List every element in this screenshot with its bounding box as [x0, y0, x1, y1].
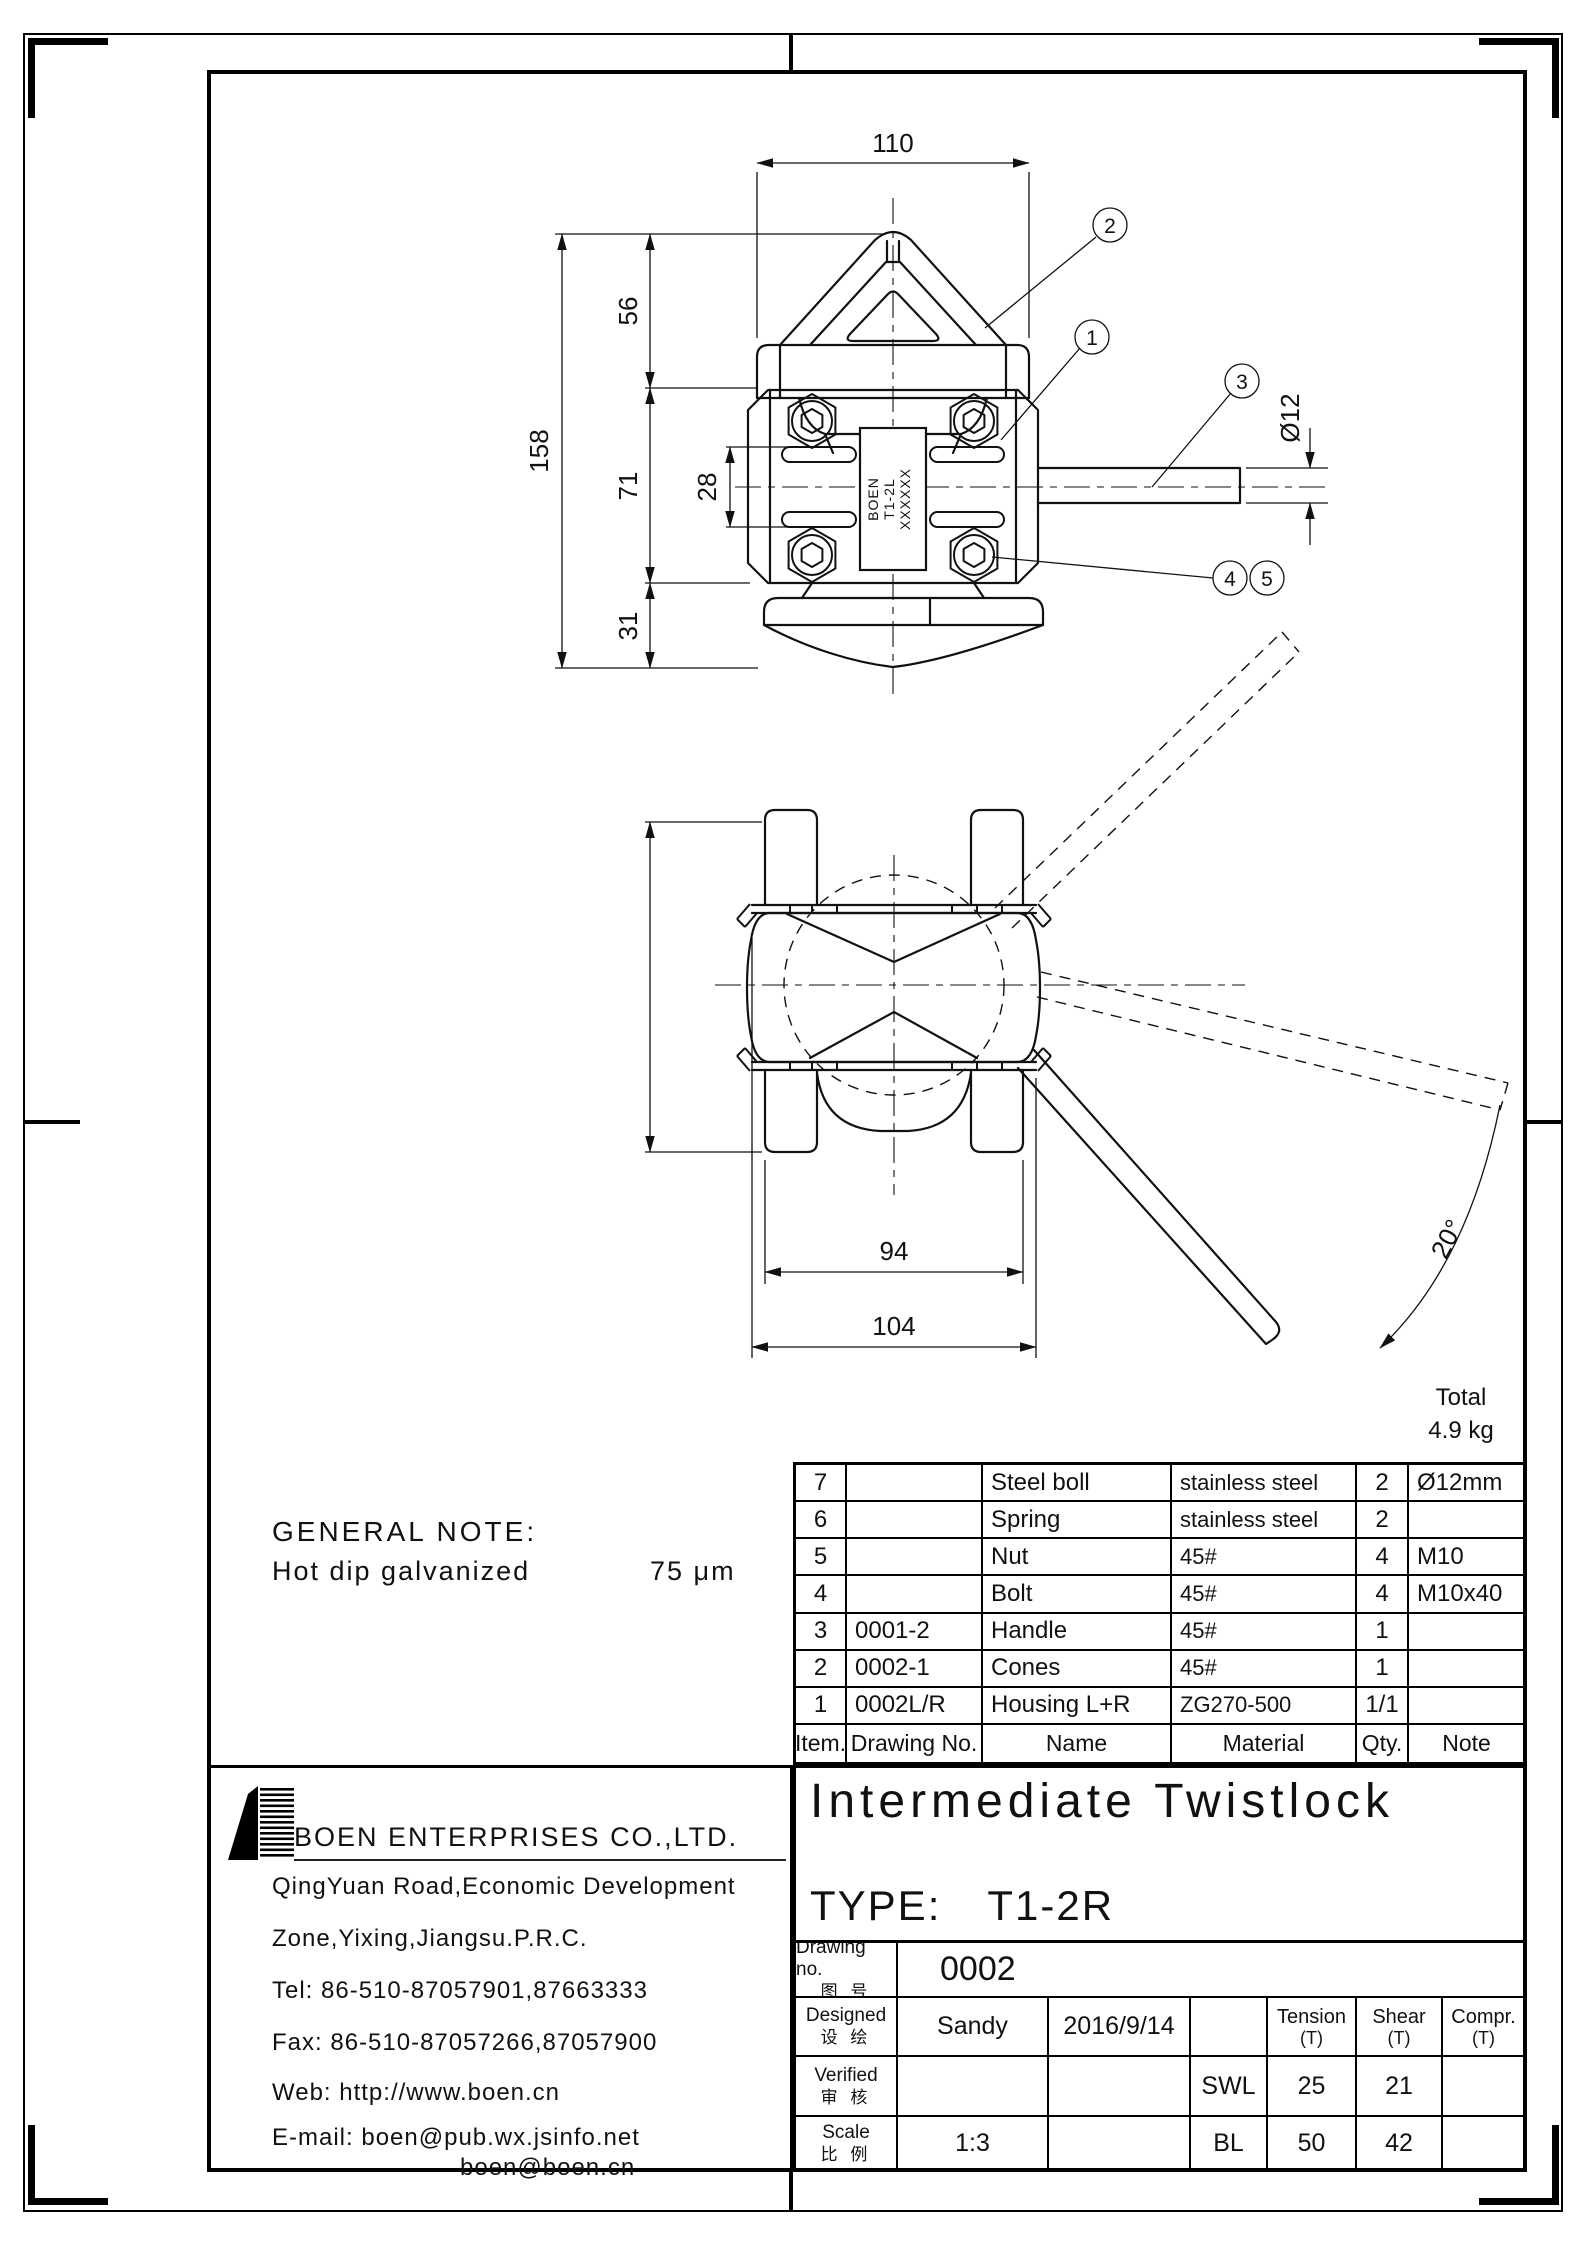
bom-cell: [847, 1539, 983, 1576]
total-value: 4.9 kg: [1406, 1414, 1516, 1447]
bom-cell: stainless steel: [1172, 1502, 1357, 1539]
type-value: T1-2R: [987, 1882, 1114, 1929]
bom-cell: 0002L/R: [847, 1688, 983, 1725]
shear-header: Shear (T): [1357, 1998, 1443, 2057]
dim-158-label: 158: [524, 429, 554, 472]
designed-date: 2016/9/14: [1049, 1998, 1191, 2057]
bom-cell: 0001-2: [847, 1614, 983, 1651]
bom-cell: stainless steel: [1172, 1465, 1357, 1502]
bl-shear: 42: [1357, 2117, 1443, 2169]
bom-cell: M10: [1409, 1539, 1524, 1576]
side-view: 20° 94 104: [645, 632, 1508, 1358]
bom-cell: 4: [1357, 1539, 1409, 1576]
bom-cell: Cones: [983, 1651, 1172, 1688]
scale-label: Scale 比 例: [796, 2117, 898, 2169]
bl-label: BL: [1191, 2117, 1268, 2169]
bottom-cone-outline: [764, 583, 1043, 667]
company-logo: [228, 1784, 298, 1864]
handle-rod: [1038, 468, 1240, 503]
bom-cell: Bolt: [983, 1576, 1172, 1613]
dim-rod-label: Ø12: [1275, 393, 1305, 442]
bom-cell: 45#: [1172, 1539, 1357, 1576]
swl-tension: 25: [1268, 2057, 1357, 2117]
bom-cell: ZG270-500: [1172, 1688, 1357, 1725]
bom-header-item: Item.: [796, 1725, 847, 1762]
compr-header: Compr. (T): [1443, 1998, 1524, 2057]
company-address-2: Zone,Yixing,Jiangsu.P.R.C.: [272, 1925, 588, 1953]
designed-label: Designed 设 绘: [796, 1998, 898, 2057]
bom-cell: 45#: [1172, 1576, 1357, 1613]
general-note-text: Hot dip galvanized: [272, 1556, 530, 1587]
company-address-1: QingYuan Road,Economic Development: [272, 1873, 736, 1901]
scale-value: 1:3: [898, 2117, 1049, 2169]
bom-cell: 1: [1357, 1614, 1409, 1651]
drawing-no-label: Drawing no. 图 号: [796, 1943, 898, 1998]
bom-cell: Spring: [983, 1502, 1172, 1539]
bom-cell: Nut: [983, 1539, 1172, 1576]
type-label: TYPE:: [810, 1882, 941, 1929]
bom-header-qty: Qty.: [1357, 1725, 1409, 1762]
dim-angle-group: 20°: [1380, 1105, 1500, 1348]
bom-cell: Housing L+R: [983, 1688, 1172, 1725]
callout-4: 4: [1224, 568, 1236, 591]
type-line: TYPE:T1-2R: [810, 1882, 1524, 1930]
company-web: Web: http://www.boen.cn: [272, 2079, 560, 2107]
bom-table: 7 Steel boll stainless steel 2 Ø12mm 6 S…: [793, 1462, 1527, 1765]
title-box: Intermediate Twistlock TYPE:T1-2R: [793, 1765, 1527, 1943]
company-name: BOEN ENTERPRISES CO.,LTD.: [294, 1822, 786, 1861]
bom-cell: [1409, 1502, 1524, 1539]
callout-3: 3: [1236, 371, 1248, 394]
bom-cell: 2: [1357, 1465, 1409, 1502]
verified-name: [898, 2057, 1049, 2117]
callout-5: 5: [1261, 568, 1273, 591]
company-email-2: boen@boen.cn: [460, 2154, 635, 2182]
bom-cell: 4: [796, 1576, 847, 1613]
nameplate-line3: XXXXXX: [897, 468, 913, 530]
bom-cell: 1: [796, 1688, 847, 1725]
drawing-no-value: 0002: [898, 1943, 1524, 1998]
bom-cell: Ø12mm: [1409, 1465, 1524, 1502]
side-height-dim: [645, 822, 762, 1152]
bom-cell: Handle: [983, 1614, 1172, 1651]
company-email: E-mail: boen@pub.wx.jsinfo.net: [272, 2124, 640, 2152]
bom-cell: [847, 1502, 983, 1539]
bom-cell: Steel boll: [983, 1465, 1172, 1502]
cad-views: BOEN T1-2L XXXXXX 110 158: [0, 0, 1587, 1460]
bom-cell: [1409, 1651, 1524, 1688]
center-tick-bottom: [789, 2172, 793, 2212]
dim-71-label: 71: [613, 472, 643, 501]
bom-cell: 0002-1: [847, 1651, 983, 1688]
scale-blank: [1049, 2117, 1191, 2169]
bom-cell: 6: [796, 1502, 847, 1539]
page: BOEN T1-2L XXXXXX 110 158: [0, 0, 1587, 2245]
verified-date: [1049, 2057, 1191, 2117]
dim-94-label: 94: [880, 1236, 909, 1266]
total-weight: Total 4.9 kg: [1406, 1381, 1516, 1447]
bom-cell: [847, 1465, 983, 1502]
bom-header-note: Note: [1409, 1725, 1524, 1762]
title-block-grid: Drawing no. 图 号 0002 Designed 设 绘 Sandy …: [793, 1943, 1527, 2172]
bom-cell: 3: [796, 1614, 847, 1651]
bom-cell: M10x40: [1409, 1576, 1524, 1613]
dim-104-label: 104: [872, 1311, 915, 1341]
bom-cell: 4: [1357, 1576, 1409, 1613]
bom-header-material: Material: [1172, 1725, 1357, 1762]
dim-110-label: 110: [872, 128, 913, 158]
verified-label: Verified 审 核: [796, 2057, 898, 2117]
bom-cell: 7: [796, 1465, 847, 1502]
designed-name: Sandy: [898, 1998, 1049, 2057]
bl-tension: 50: [1268, 2117, 1357, 2169]
nameplate-line1: BOEN: [865, 477, 881, 521]
bom-cell: 45#: [1172, 1651, 1357, 1688]
bom-cell: 2: [1357, 1502, 1409, 1539]
callout-2: 2: [1104, 215, 1116, 238]
bom-cell: [1409, 1688, 1524, 1725]
dim-rod-group: Ø12: [1246, 393, 1328, 545]
dim-31-label: 31: [613, 612, 643, 641]
company-fax: Fax: 86-510-87057266,87057900: [272, 2029, 657, 2057]
company-box: BOEN ENTERPRISES CO.,LTD. QingYuan Road,…: [207, 1765, 793, 2172]
bl-compr: [1443, 2117, 1524, 2169]
general-note-title: GENERAL NOTE:: [272, 1516, 537, 1548]
general-note-value: 75 μm: [650, 1556, 736, 1587]
corner-mark-bottom-left: [28, 2125, 108, 2205]
bom-cell: 2: [796, 1651, 847, 1688]
callout-1: 1: [1086, 327, 1098, 350]
swl-shear: 21: [1357, 2057, 1443, 2117]
bom-cell: [1409, 1614, 1524, 1651]
bom-cell: 45#: [1172, 1614, 1357, 1651]
dim-28-label: 28: [692, 473, 722, 502]
bom-cell: 1/1: [1357, 1688, 1409, 1725]
front-view: BOEN T1-2L XXXXXX 110 158: [524, 128, 1330, 700]
drawing-title: Intermediate Twistlock: [810, 1774, 1524, 1829]
dim-angle-label: 20°: [1425, 1214, 1470, 1263]
bom-cell: 1: [1357, 1651, 1409, 1688]
side-handle: [1018, 1050, 1279, 1344]
dim-94-group: 94: [765, 1160, 1023, 1284]
nameplate-line2: T1-2L: [881, 478, 897, 520]
dim-56-71-31-group: 56 71 31: [613, 234, 758, 668]
company-tel: Tel: 86-510-87057901,87663333: [272, 1977, 648, 2005]
bom-cell: 5: [796, 1539, 847, 1576]
swl-compr: [1443, 2057, 1524, 2117]
phantom-handle-positions: [784, 632, 1508, 1110]
swl-label: SWL: [1191, 2057, 1268, 2117]
total-label: Total: [1406, 1381, 1516, 1414]
bom-header-name: Name: [983, 1725, 1172, 1762]
tension-header: Tension (T): [1268, 1998, 1357, 2057]
ratings-blank-header: [1191, 1998, 1268, 2057]
bom-cell: [847, 1576, 983, 1613]
bom-header-drawing-no: Drawing No.: [847, 1725, 983, 1762]
dim-56-label: 56: [613, 297, 643, 326]
